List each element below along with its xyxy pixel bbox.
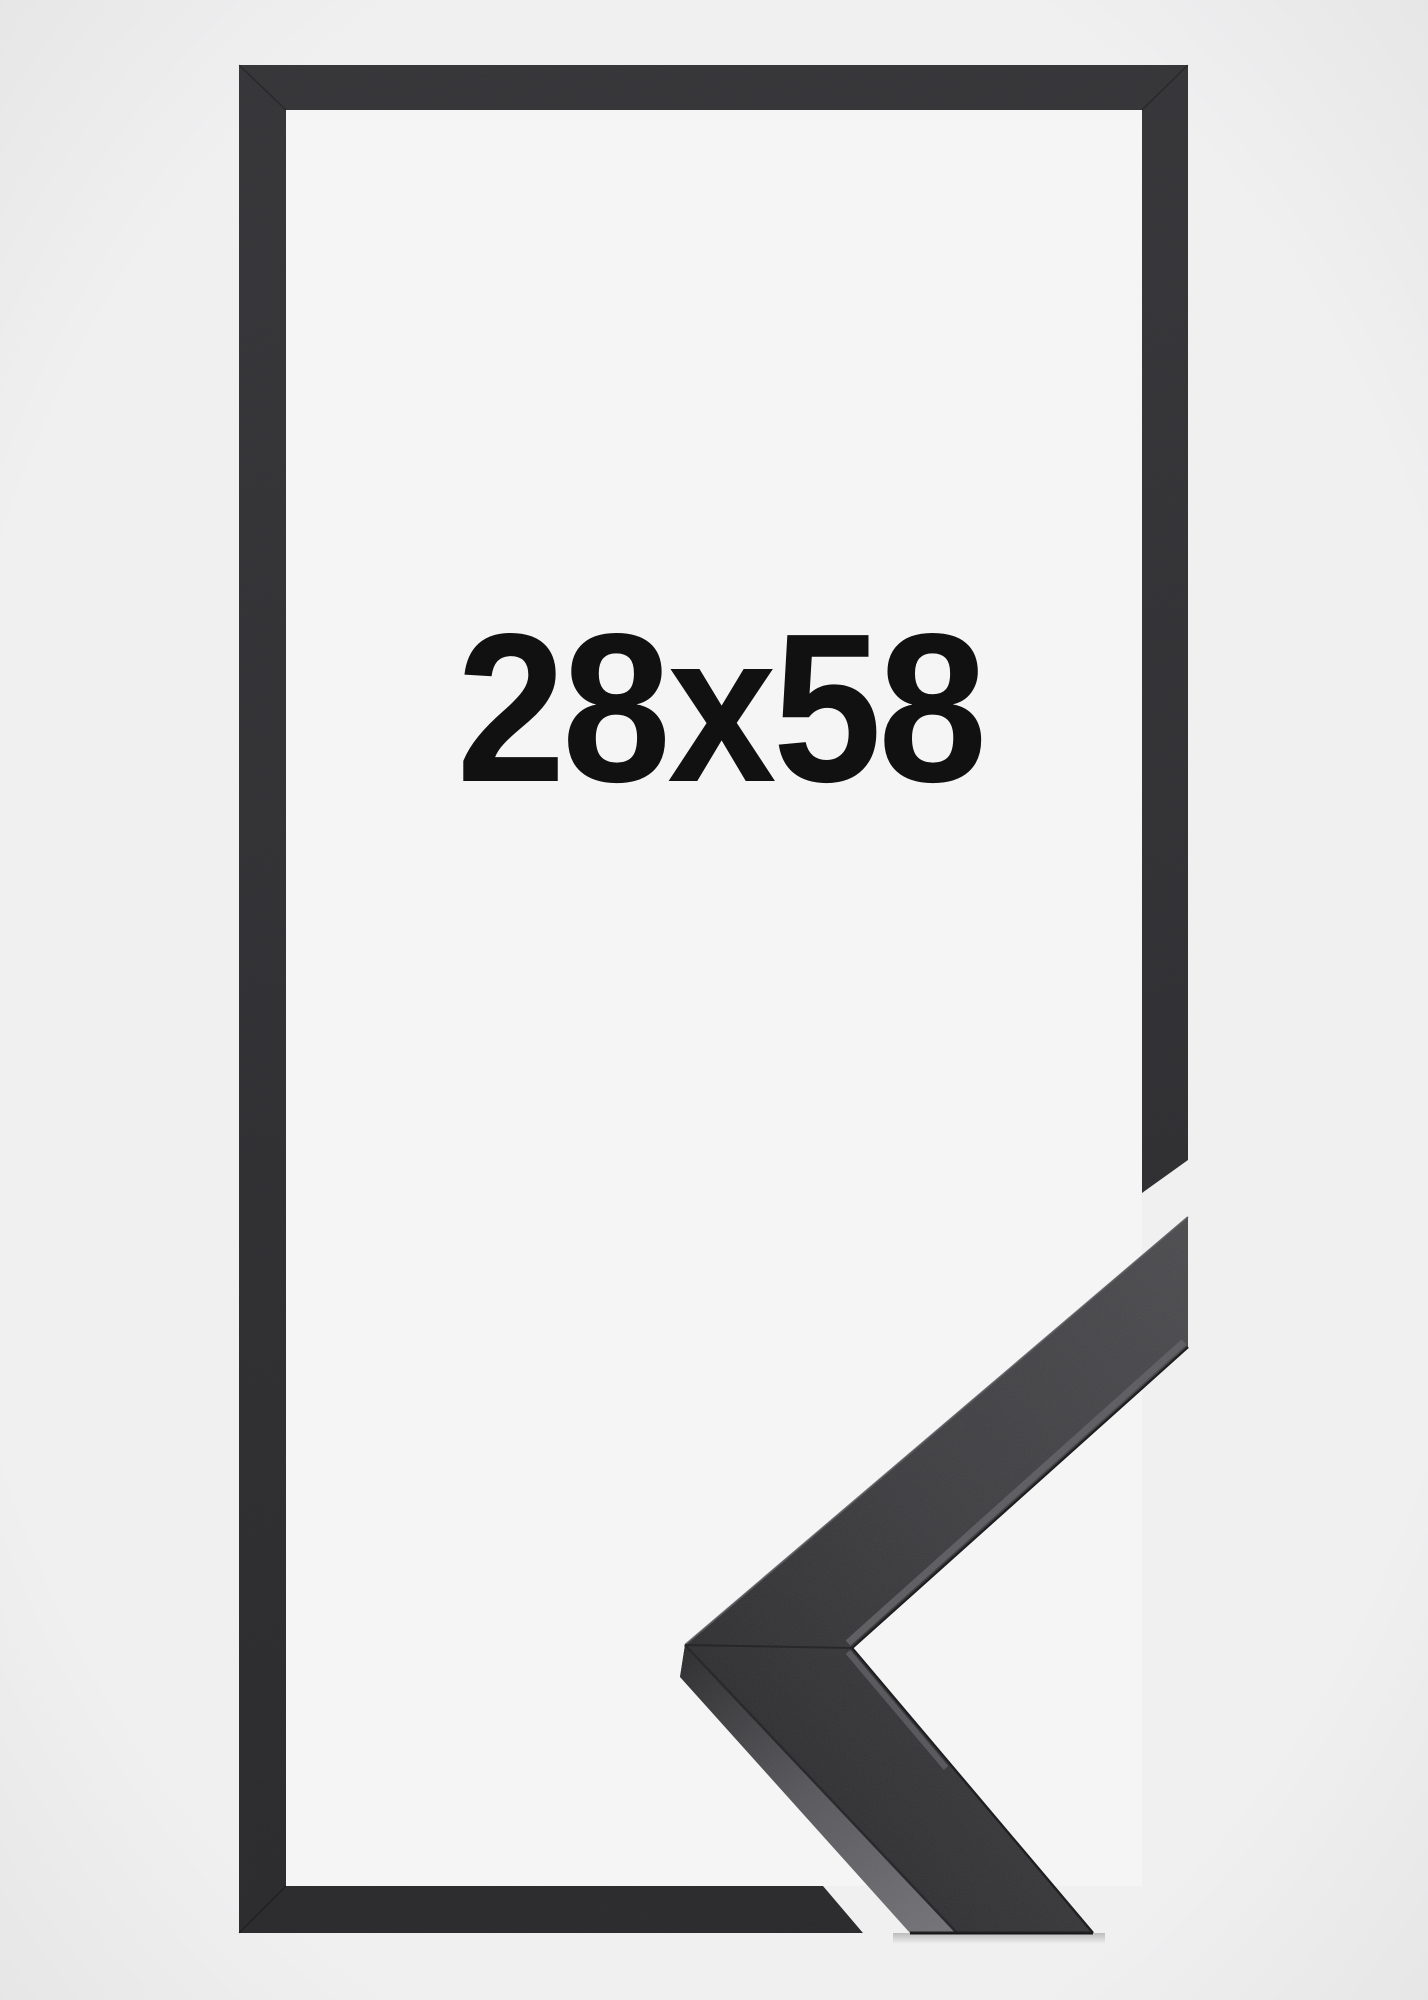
vignette-overlay xyxy=(0,0,1428,2000)
frame-illustration: 28x58 xyxy=(0,0,1428,2000)
product-image: 28x58 xyxy=(0,0,1428,2000)
